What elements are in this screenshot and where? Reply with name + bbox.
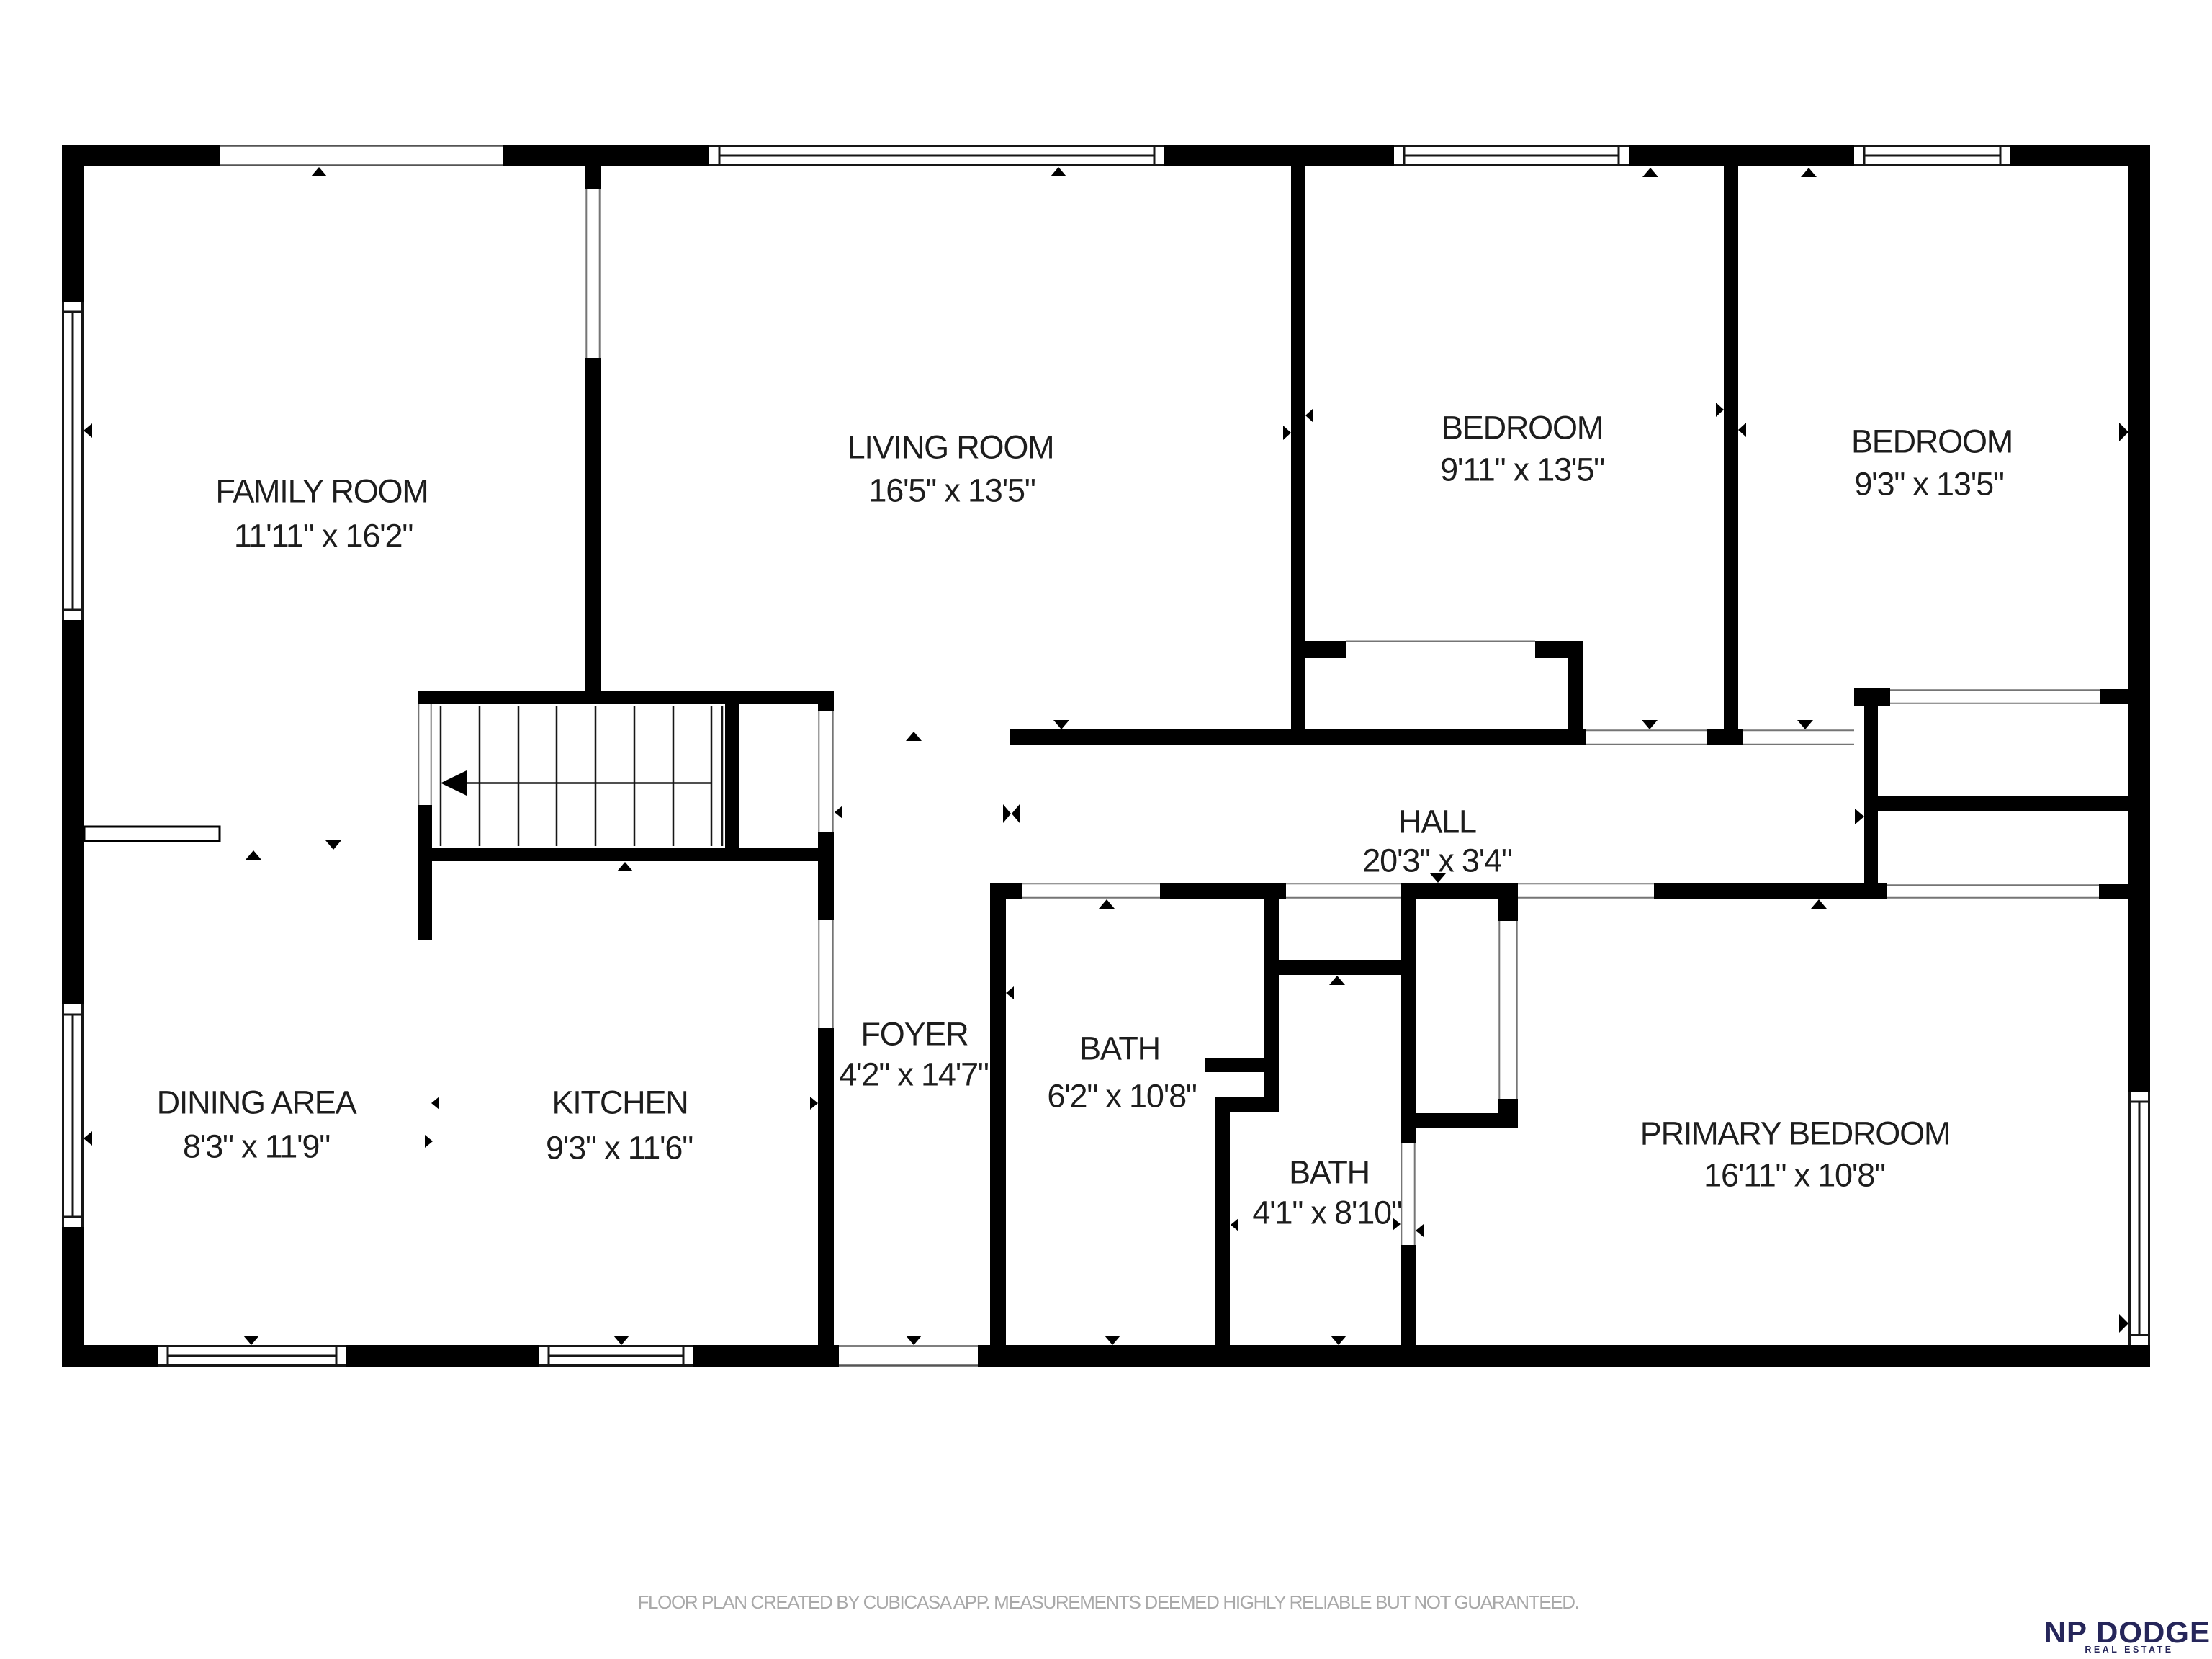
- svg-text:REAL ESTATE: REAL ESTATE: [2085, 1645, 2173, 1655]
- svg-text:16'5" x 13'5": 16'5" x 13'5": [868, 472, 1035, 509]
- svg-text:6'2" x 10'8": 6'2" x 10'8": [1047, 1078, 1197, 1115]
- svg-text:FLOOR PLAN CREATED BY CUBICASA: FLOOR PLAN CREATED BY CUBICASA APP. MEAS…: [637, 1591, 1578, 1613]
- svg-text:KITCHEN: KITCHEN: [552, 1084, 688, 1121]
- svg-text:NP DODGE: NP DODGE: [2044, 1615, 2211, 1649]
- svg-text:16'11" x 10'8": 16'11" x 10'8": [1704, 1157, 1885, 1194]
- svg-text:9'3" x 13'5": 9'3" x 13'5": [1854, 466, 2004, 503]
- svg-text:BEDROOM: BEDROOM: [1851, 423, 2013, 460]
- svg-text:4'1" x 8'10": 4'1" x 8'10": [1252, 1195, 1402, 1231]
- svg-text:4'2" x 14'7": 4'2" x 14'7": [839, 1056, 989, 1093]
- svg-text:PRIMARY BEDROOM: PRIMARY BEDROOM: [1640, 1115, 1950, 1152]
- svg-text:11'11" x 16'2": 11'11" x 16'2": [234, 518, 413, 554]
- svg-text:8'3" x 11'9": 8'3" x 11'9": [183, 1128, 330, 1165]
- svg-text:BEDROOM: BEDROOM: [1442, 410, 1603, 446]
- svg-text:DINING AREA: DINING AREA: [157, 1084, 357, 1121]
- svg-text:9'3" x 11'6": 9'3" x 11'6": [546, 1130, 693, 1166]
- svg-text:HALL: HALL: [1398, 804, 1476, 840]
- svg-text:BATH: BATH: [1079, 1030, 1160, 1067]
- svg-text:9'11" x 13'5": 9'11" x 13'5": [1440, 451, 1604, 488]
- svg-text:FAMILY ROOM: FAMILY ROOM: [215, 473, 428, 510]
- svg-text:20'3" x 3'4": 20'3" x 3'4": [1362, 842, 1512, 879]
- svg-text:FOYER: FOYER: [860, 1016, 968, 1053]
- svg-text:BATH: BATH: [1289, 1154, 1370, 1191]
- svg-text:LIVING ROOM: LIVING ROOM: [848, 429, 1054, 466]
